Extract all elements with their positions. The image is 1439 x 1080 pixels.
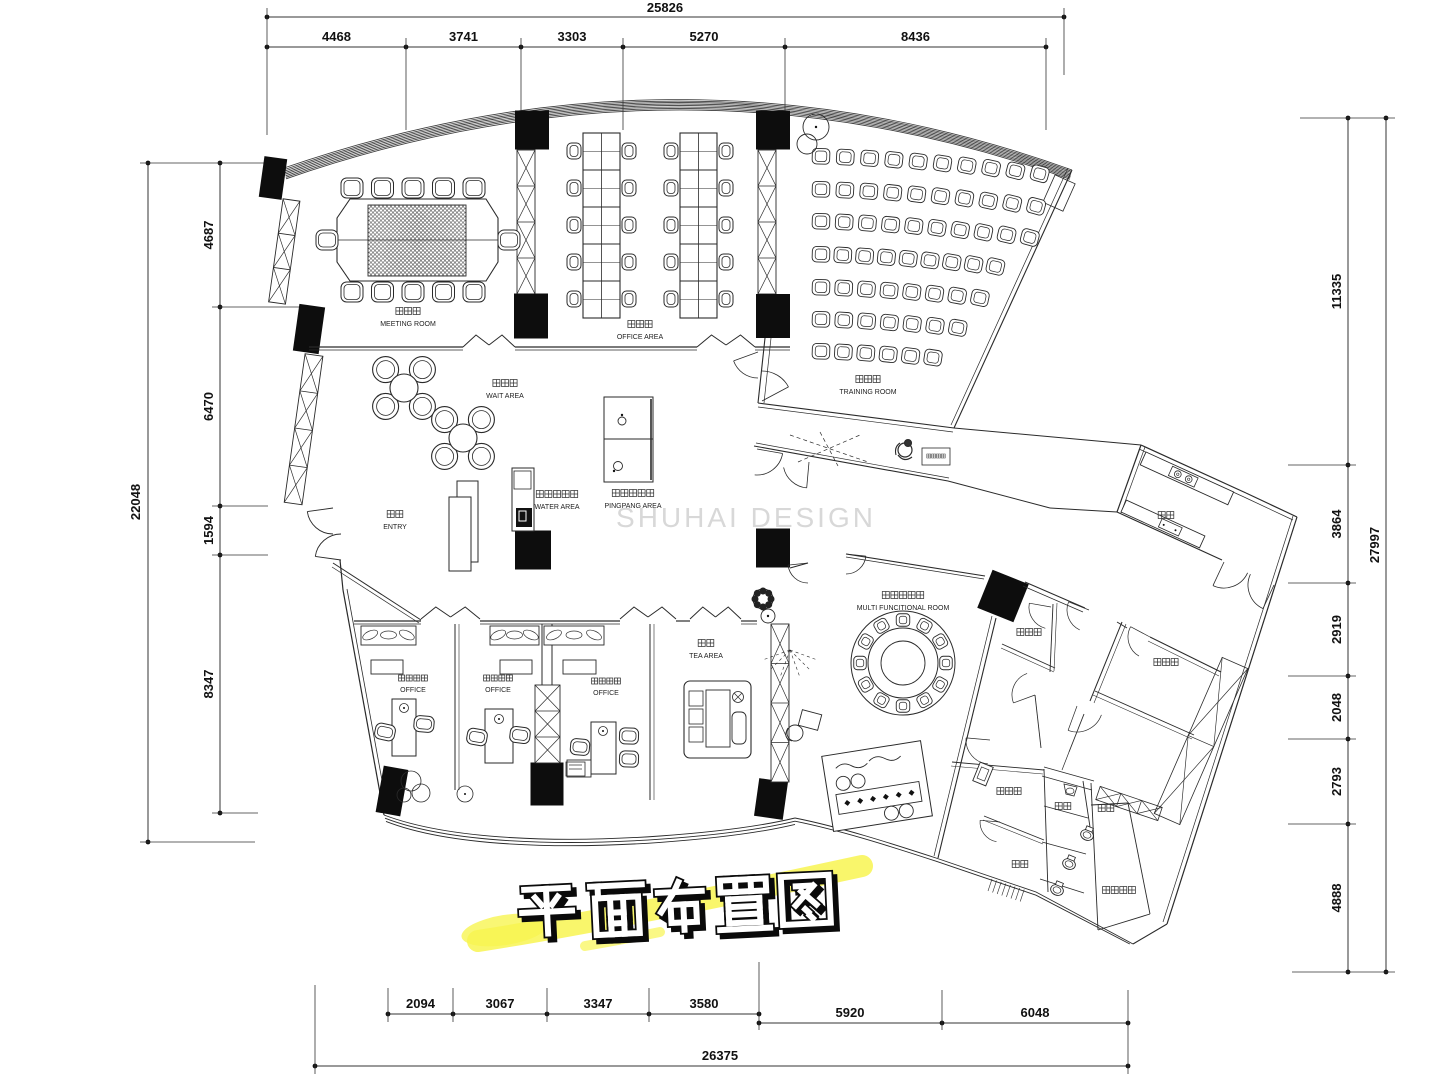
svg-text:2048: 2048 (1329, 693, 1344, 722)
svg-text:WATER AREA: WATER AREA (534, 504, 579, 511)
svg-text:OFFICE: OFFICE (485, 687, 511, 694)
svg-text:2919: 2919 (1329, 615, 1344, 644)
svg-text:3864: 3864 (1329, 509, 1344, 539)
svg-text:6470: 6470 (201, 392, 216, 421)
svg-text:6048: 6048 (1021, 1005, 1050, 1020)
svg-text:2094: 2094 (406, 996, 436, 1011)
svg-text:WAIT AREA: WAIT AREA (486, 393, 524, 400)
svg-text:27997: 27997 (1367, 527, 1382, 563)
svg-text:3741: 3741 (449, 29, 478, 44)
svg-text:TRAINING ROOM: TRAINING ROOM (839, 389, 896, 396)
svg-text:26375: 26375 (702, 1048, 738, 1063)
svg-text:3580: 3580 (690, 996, 719, 1011)
svg-text:8347: 8347 (201, 670, 216, 699)
svg-text:4468: 4468 (322, 29, 351, 44)
svg-text:MULTI FUNCITIONAL ROOM: MULTI FUNCITIONAL ROOM (857, 605, 950, 612)
svg-text:3347: 3347 (584, 996, 613, 1011)
svg-text:SHUHAI DESIGN: SHUHAI DESIGN (616, 502, 876, 533)
svg-text:11335: 11335 (1329, 274, 1344, 309)
svg-text:25826: 25826 (647, 0, 683, 15)
svg-text:4888: 4888 (1329, 884, 1344, 913)
svg-text:OFFICE: OFFICE (593, 690, 619, 697)
svg-text:ENTRY: ENTRY (383, 524, 407, 531)
svg-text:2793: 2793 (1329, 767, 1344, 796)
svg-text:OFFICE: OFFICE (400, 687, 426, 694)
svg-text:4687: 4687 (201, 221, 216, 250)
svg-text:1594: 1594 (201, 515, 216, 545)
svg-text:5270: 5270 (690, 29, 719, 44)
svg-text:3067: 3067 (486, 996, 515, 1011)
svg-text:22048: 22048 (128, 484, 143, 520)
svg-text:3303: 3303 (558, 29, 587, 44)
svg-text:TEA AREA: TEA AREA (689, 653, 723, 660)
svg-text:MEETING ROOM: MEETING ROOM (380, 321, 436, 328)
svg-text:5920: 5920 (836, 1005, 865, 1020)
svg-text:OFFICE AREA: OFFICE AREA (617, 334, 664, 341)
svg-text:8436: 8436 (901, 29, 930, 44)
